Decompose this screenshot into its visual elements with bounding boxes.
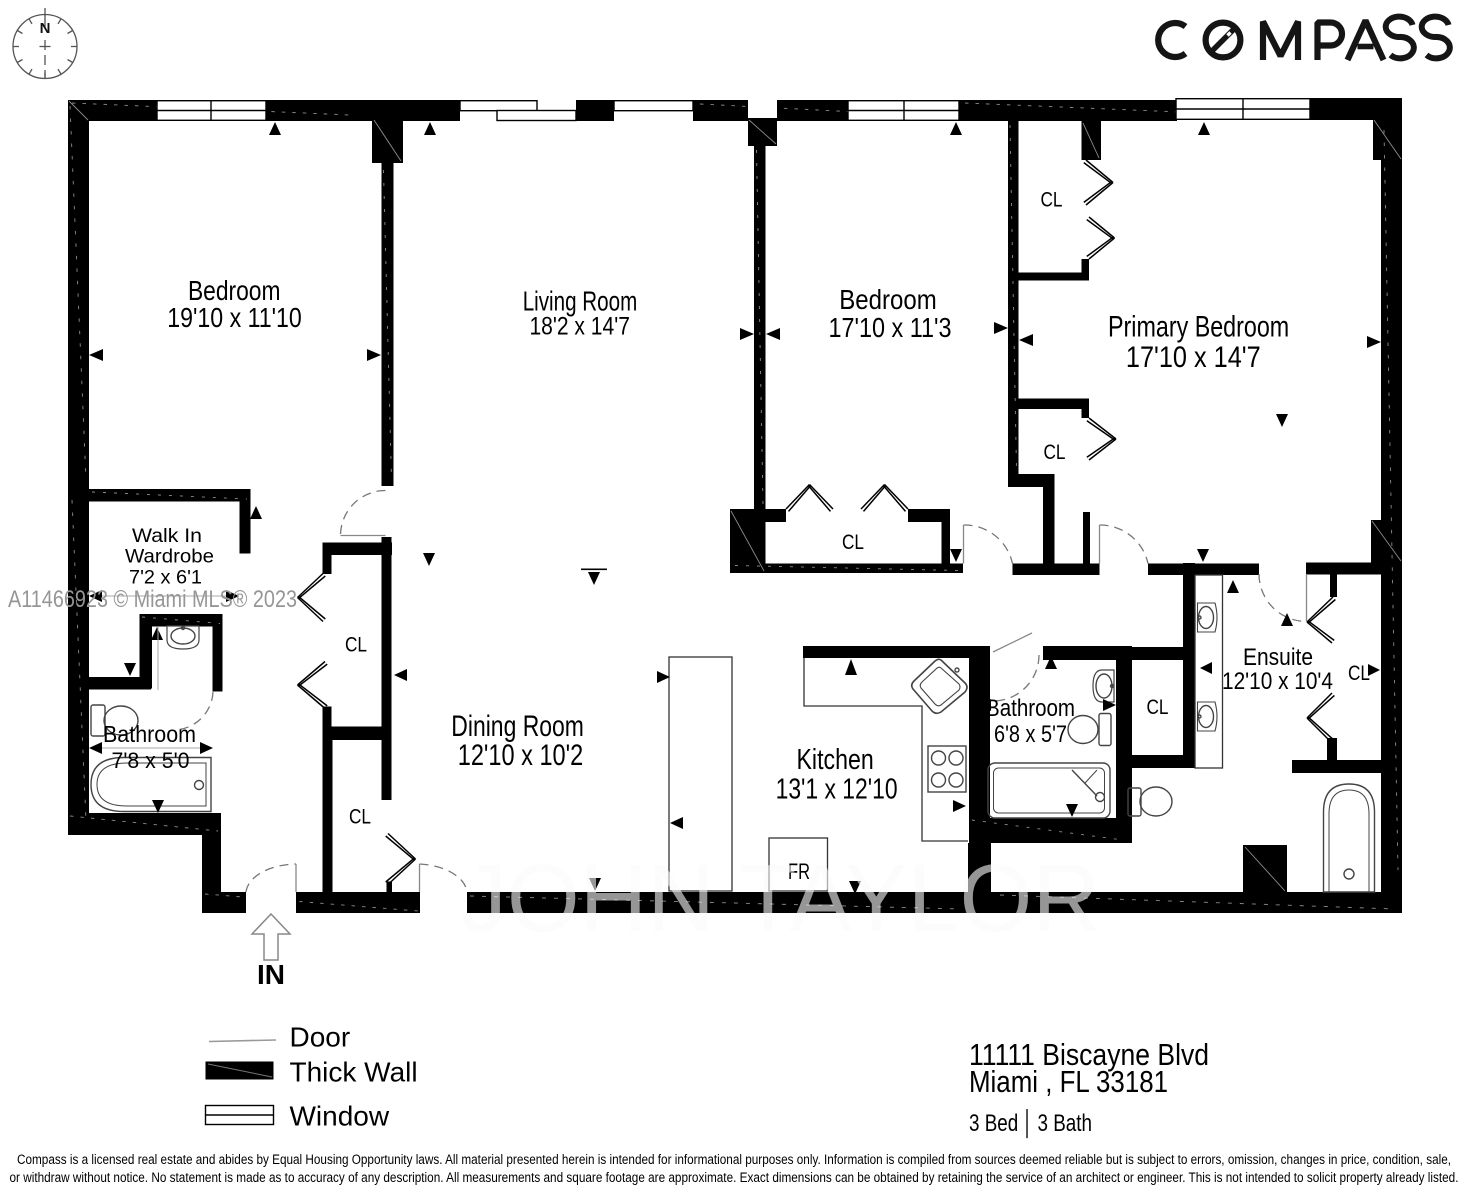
svg-text:CL: CL	[349, 806, 371, 829]
svg-text:Bathroom: Bathroom	[986, 695, 1075, 722]
svg-text:CL: CL	[1348, 662, 1370, 685]
svg-text:17'10 x 11'3: 17'10 x 11'3	[829, 312, 952, 343]
svg-text:19'10 x 11'10: 19'10 x 11'10	[167, 302, 302, 333]
svg-text:Compass is a licensed real est: Compass is a licensed real estate and ab…	[17, 1152, 1451, 1167]
svg-text:Window: Window	[290, 1101, 390, 1132]
svg-text:6'8 x 5'7: 6'8 x 5'7	[994, 721, 1067, 748]
svg-text:18'2 x 14'7: 18'2 x 14'7	[529, 313, 630, 341]
svg-text:17'10 x 14'7: 17'10 x 14'7	[1126, 341, 1261, 374]
svg-text:3 Bed │ 3 Bath: 3 Bed │ 3 Bath	[969, 1109, 1092, 1139]
svg-text:12'10 x 10'4: 12'10 x 10'4	[1222, 668, 1333, 695]
svg-text:Ensuite: Ensuite	[1243, 644, 1313, 671]
svg-text:CL: CL	[1147, 696, 1169, 719]
svg-text:Miami , FL 33181: Miami , FL 33181	[969, 1064, 1168, 1099]
svg-text:13'1 x 12'10: 13'1 x 12'10	[776, 774, 898, 806]
svg-text:Thick Wall: Thick Wall	[290, 1057, 418, 1088]
svg-text:7'8 x 5'0: 7'8 x 5'0	[112, 748, 190, 773]
svg-text:Kitchen: Kitchen	[797, 744, 874, 776]
svg-text:12'10 x 10'2: 12'10 x 10'2	[458, 739, 584, 772]
svg-text:Bathroom: Bathroom	[103, 721, 196, 747]
svg-text:CL: CL	[345, 634, 367, 657]
svg-text:CL: CL	[842, 531, 864, 554]
svg-text:Bedroom: Bedroom	[839, 284, 936, 315]
svg-text:A11466923 © Miami MLS® 2023: A11466923 © Miami MLS® 2023	[8, 586, 297, 613]
svg-text:CL: CL	[1041, 189, 1063, 212]
svg-text:IN: IN	[257, 959, 285, 990]
svg-text:Wardrobe: Wardrobe	[125, 546, 214, 568]
svg-text:JOHN TAYLOR: JOHN TAYLOR	[460, 845, 1100, 952]
svg-text:Walk In: Walk In	[132, 525, 202, 547]
svg-text:N: N	[40, 20, 51, 37]
svg-text:Primary Bedroom: Primary Bedroom	[1108, 311, 1289, 344]
svg-text:Door: Door	[290, 1022, 351, 1053]
svg-text:CL: CL	[1044, 441, 1066, 464]
svg-text:or withdraw without notice. No: or withdraw without notice. No statement…	[10, 1170, 1459, 1185]
